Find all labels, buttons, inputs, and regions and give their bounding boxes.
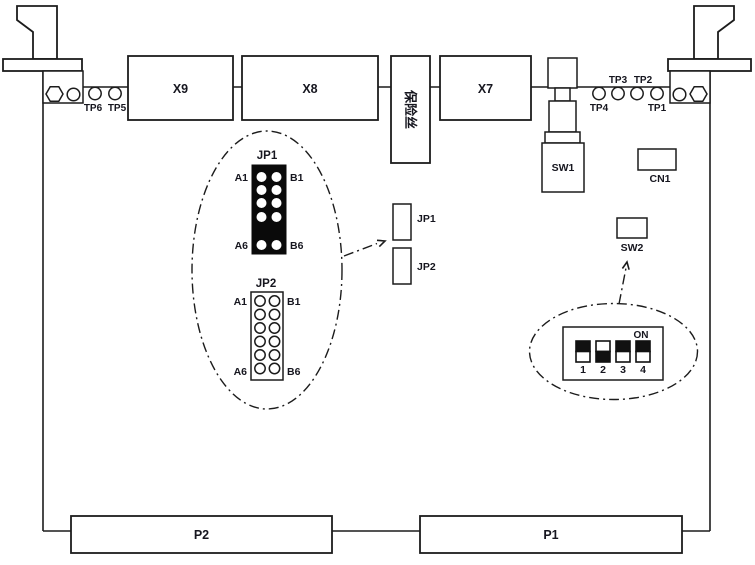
jumper-detail-callout: JP1 A1 B1 A6 B6 JP2: [192, 131, 385, 409]
connector-p2: P2: [71, 516, 332, 553]
dip1-top-half: [576, 341, 590, 352]
x7-label: X7: [478, 82, 493, 96]
jp1-detail: JP1 A1 B1 A6 B6: [235, 150, 304, 254]
sw2-body: [617, 218, 647, 238]
jp2-detail-title: JP2: [256, 278, 276, 290]
dip-arrow-line: [619, 268, 626, 304]
switch-sw1: SW1: [542, 58, 584, 192]
x8-label: X8: [302, 82, 317, 96]
dip2-label: 2: [600, 364, 606, 376]
right-front-panel: [668, 6, 751, 103]
connector-p1: P1: [420, 516, 682, 553]
tp5-label: TP5: [108, 103, 127, 114]
tp1-label: TP1: [648, 103, 667, 114]
fuse-label: 保险丝: [403, 89, 418, 129]
sw1-label: SW1: [552, 162, 575, 174]
dip4-label: 4: [640, 364, 646, 376]
jp1-pin-b6-label: B6: [290, 240, 304, 252]
jp2-pin-a6-label: A6: [234, 366, 248, 378]
right-ejector-handle-icon: [694, 6, 734, 59]
connector-x9: X9: [128, 56, 233, 120]
tp6-label: TP6: [84, 103, 103, 114]
pcb-layout-diagram: TP6 TP5 TP3 TP2 TP4 TP1 X9 X8 保险丝 X7 SW1: [0, 0, 755, 560]
dip3-bottom-half: [616, 352, 630, 363]
jp1-pin-a1-label: A1: [235, 172, 249, 184]
dip4-top-half: [636, 341, 650, 352]
cn1-label: CN1: [649, 173, 670, 185]
screw-hole-icon: [67, 88, 80, 101]
jp1-onboard-body: [393, 204, 411, 240]
p2-label: P2: [194, 528, 209, 542]
jp1-onboard-label: JP1: [417, 213, 436, 225]
dip3-top-half: [616, 341, 630, 352]
sw1-collar: [545, 132, 580, 143]
jp2-onboard-label: JP2: [417, 261, 436, 273]
sw1-neck: [555, 88, 570, 101]
jp2-onboard-body: [393, 248, 411, 284]
tp2-label: TP2: [634, 75, 653, 86]
connector-x8: X8: [242, 56, 378, 120]
board-outline: [43, 71, 710, 531]
cn1-body: [638, 149, 676, 170]
dip4-bottom-half: [636, 352, 650, 363]
fuse: 保险丝: [391, 56, 430, 163]
dip2-bottom-half: [596, 352, 610, 363]
test-point-tp3: [612, 87, 624, 99]
dip1-label: 1: [580, 364, 586, 376]
jp1-pin-a6-label: A6: [235, 240, 249, 252]
switch-sw2: SW2: [617, 218, 647, 254]
sw1-mid-section: [549, 101, 576, 132]
jp2-pin-b1-label: B1: [287, 296, 301, 308]
test-point-tp1: [651, 87, 663, 99]
jumper-jp1-onboard: JP1: [393, 204, 436, 240]
dip-on-label: ON: [634, 330, 649, 341]
jp2-detail: JP2 A1 B1 A6 B6: [234, 278, 301, 380]
right-panel-flange: [668, 59, 751, 71]
jumper-jp2-onboard: JP2: [393, 248, 436, 284]
dip2-top-half: [596, 341, 610, 352]
callout-arrowhead-icon: [377, 240, 385, 246]
board-diagram-canvas: TP6 TP5 TP3 TP2 TP4 TP1 X9 X8 保险丝 X7 SW1: [0, 0, 755, 560]
test-point-tp2: [631, 87, 643, 99]
hex-nut-icon: [46, 87, 63, 101]
test-points-left: TP6 TP5: [84, 87, 127, 114]
sw2-label: SW2: [621, 242, 644, 254]
hex-nut-icon: [690, 87, 707, 101]
sw1-top-square: [548, 58, 577, 88]
test-point-tp4: [593, 87, 605, 99]
test-points-right: TP3 TP2 TP4 TP1: [590, 75, 667, 114]
dip-arrowhead-icon: [622, 262, 629, 270]
left-ejector-handle-icon: [17, 6, 57, 59]
dip-switch-callout: ON 1 2 3 4: [530, 262, 698, 400]
connector-x7: X7: [440, 56, 531, 120]
callout-arrow-line: [344, 244, 377, 257]
jp2-pin-a1-label: A1: [234, 296, 248, 308]
dip3-label: 3: [620, 364, 626, 376]
tp4-label: TP4: [590, 103, 609, 114]
left-front-panel: [3, 6, 83, 103]
jp1-pin-b1-label: B1: [290, 172, 304, 184]
jp2-pin-b6-label: B6: [287, 366, 301, 378]
left-panel-flange: [3, 59, 82, 71]
tp3-label: TP3: [609, 75, 628, 86]
p1-label: P1: [543, 528, 558, 542]
connector-cn1: CN1: [638, 149, 676, 185]
test-point-tp6: [89, 87, 101, 99]
test-point-tp5: [109, 87, 121, 99]
x9-label: X9: [173, 82, 188, 96]
dip1-bottom-half: [576, 352, 590, 363]
screw-hole-icon: [673, 88, 686, 101]
jp1-detail-title: JP1: [257, 150, 278, 162]
